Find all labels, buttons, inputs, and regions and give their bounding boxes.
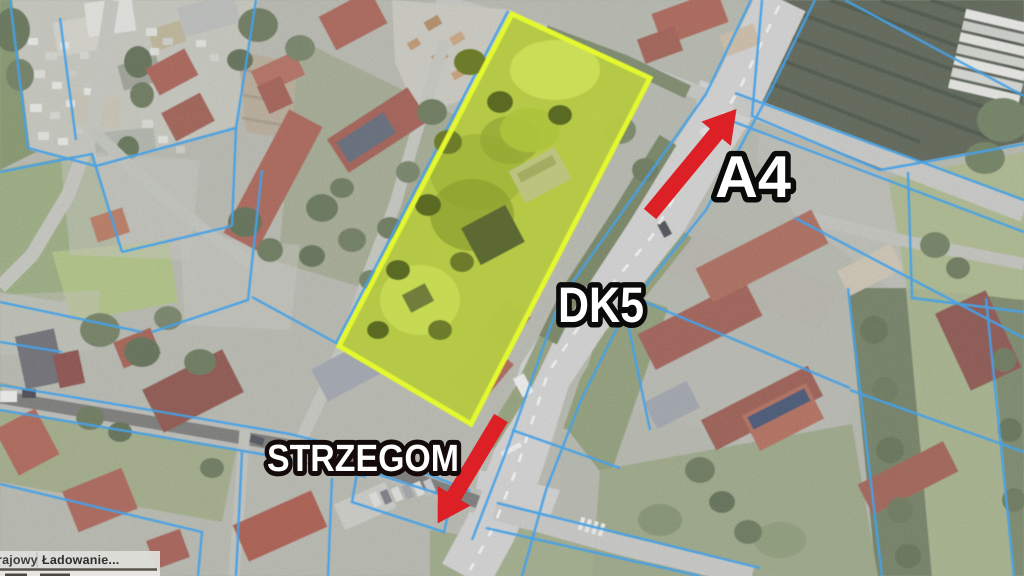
- svg-text:STRZEGOM: STRZEGOM: [267, 438, 459, 480]
- svg-text:rajowy: rajowy: [0, 553, 38, 567]
- svg-text:DK5: DK5: [558, 277, 644, 333]
- svg-text:Ładowanie...: Ładowanie...: [42, 553, 119, 567]
- svg-text:A4: A4: [715, 144, 791, 210]
